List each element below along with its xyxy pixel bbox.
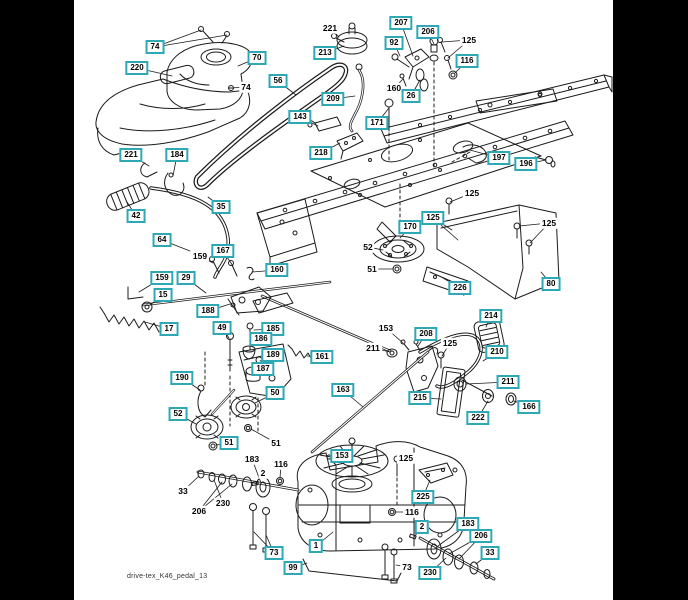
part-callout-211: 211 bbox=[364, 343, 382, 354]
part-callout-50[interactable]: 50 bbox=[266, 386, 285, 400]
part-callout-163[interactable]: 163 bbox=[331, 383, 354, 397]
part-callout-26[interactable]: 26 bbox=[402, 89, 421, 103]
part-callout-35[interactable]: 35 bbox=[212, 200, 231, 214]
part-callout-189[interactable]: 189 bbox=[261, 348, 284, 362]
part-callout-188[interactable]: 188 bbox=[196, 304, 219, 318]
part-callout-218[interactable]: 218 bbox=[309, 146, 332, 160]
part-callout-2[interactable]: 2 bbox=[415, 520, 429, 534]
part-callout-42[interactable]: 42 bbox=[127, 209, 146, 223]
part-callout-64[interactable]: 64 bbox=[153, 233, 172, 247]
part-callout-210[interactable]: 210 bbox=[485, 345, 508, 359]
part-callout-125: 125 bbox=[397, 453, 415, 464]
part-callout-206: 206 bbox=[190, 506, 208, 517]
part-callout-33[interactable]: 33 bbox=[481, 546, 500, 560]
part-callout-116: 116 bbox=[272, 459, 290, 470]
part-callout-125: 125 bbox=[540, 218, 558, 229]
part-callout-160: 160 bbox=[385, 83, 403, 94]
callout-layer: 7422070745614322121320720692125116160262… bbox=[0, 0, 688, 600]
part-callout-196[interactable]: 196 bbox=[514, 157, 537, 171]
letterbox-background: { "window": { "background_color": "#0000… bbox=[0, 0, 688, 600]
part-callout-230[interactable]: 230 bbox=[418, 566, 441, 580]
part-callout-206[interactable]: 206 bbox=[416, 25, 439, 39]
part-callout-29[interactable]: 29 bbox=[177, 271, 196, 285]
part-callout-80[interactable]: 80 bbox=[542, 277, 561, 291]
part-callout-197[interactable]: 197 bbox=[487, 151, 510, 165]
part-callout-52: 52 bbox=[361, 242, 374, 253]
part-callout-225[interactable]: 225 bbox=[411, 490, 434, 504]
part-callout-51: 51 bbox=[365, 264, 378, 275]
part-callout-183: 183 bbox=[243, 454, 261, 465]
part-callout-51[interactable]: 51 bbox=[220, 436, 239, 450]
part-callout-190[interactable]: 190 bbox=[170, 371, 193, 385]
part-callout-125: 125 bbox=[460, 35, 478, 46]
part-callout-221: 221 bbox=[321, 23, 339, 34]
part-callout-52[interactable]: 52 bbox=[169, 407, 188, 421]
part-callout-153[interactable]: 153 bbox=[330, 449, 353, 463]
part-callout-92[interactable]: 92 bbox=[385, 36, 404, 50]
part-callout-51: 51 bbox=[269, 438, 282, 449]
part-callout-116[interactable]: 116 bbox=[456, 54, 479, 68]
part-callout-161[interactable]: 161 bbox=[310, 350, 333, 364]
drawing-filename: drive-tex_K46_pedal_13 bbox=[127, 573, 207, 580]
part-callout-1[interactable]: 1 bbox=[309, 539, 323, 553]
part-callout-211[interactable]: 211 bbox=[497, 375, 520, 389]
part-callout-221[interactable]: 221 bbox=[119, 148, 142, 162]
part-callout-143[interactable]: 143 bbox=[288, 110, 311, 124]
part-callout-187[interactable]: 187 bbox=[251, 362, 274, 376]
part-callout-15[interactable]: 15 bbox=[154, 288, 173, 302]
part-callout-166[interactable]: 166 bbox=[517, 400, 540, 414]
part-callout-213[interactable]: 213 bbox=[313, 46, 336, 60]
part-callout-209[interactable]: 209 bbox=[321, 92, 344, 106]
part-callout-222[interactable]: 222 bbox=[466, 411, 489, 425]
part-callout-167[interactable]: 167 bbox=[211, 244, 234, 258]
part-callout-49[interactable]: 49 bbox=[213, 321, 232, 335]
part-callout-184[interactable]: 184 bbox=[165, 148, 188, 162]
part-callout-206[interactable]: 206 bbox=[469, 529, 492, 543]
part-callout-220[interactable]: 220 bbox=[125, 61, 148, 75]
part-callout-171[interactable]: 171 bbox=[365, 116, 388, 130]
part-callout-186[interactable]: 186 bbox=[249, 332, 272, 346]
part-callout-208[interactable]: 208 bbox=[414, 327, 437, 341]
part-callout-226[interactable]: 226 bbox=[448, 281, 471, 295]
part-callout-73: 73 bbox=[400, 562, 413, 573]
part-callout-56[interactable]: 56 bbox=[269, 74, 288, 88]
part-callout-207[interactable]: 207 bbox=[389, 16, 412, 30]
part-callout-215[interactable]: 215 bbox=[408, 391, 431, 405]
part-callout-160[interactable]: 160 bbox=[265, 263, 288, 277]
part-callout-33: 33 bbox=[176, 486, 189, 497]
part-callout-74: 74 bbox=[239, 82, 252, 93]
part-callout-73[interactable]: 73 bbox=[265, 546, 284, 560]
part-callout-17[interactable]: 17 bbox=[160, 322, 179, 336]
part-callout-99[interactable]: 99 bbox=[284, 561, 303, 575]
part-callout-159[interactable]: 159 bbox=[150, 271, 173, 285]
part-callout-159: 159 bbox=[191, 251, 209, 262]
part-callout-74[interactable]: 74 bbox=[146, 40, 165, 54]
part-callout-125: 125 bbox=[463, 188, 481, 199]
part-callout-230: 230 bbox=[214, 498, 232, 509]
part-callout-2: 2 bbox=[259, 468, 268, 479]
part-callout-125[interactable]: 125 bbox=[421, 211, 444, 225]
part-callout-214[interactable]: 214 bbox=[479, 309, 502, 323]
part-callout-153: 153 bbox=[377, 323, 395, 334]
part-callout-125: 125 bbox=[441, 338, 459, 349]
part-callout-170[interactable]: 170 bbox=[398, 220, 421, 234]
part-callout-116: 116 bbox=[403, 507, 421, 518]
part-callout-70[interactable]: 70 bbox=[248, 51, 267, 65]
